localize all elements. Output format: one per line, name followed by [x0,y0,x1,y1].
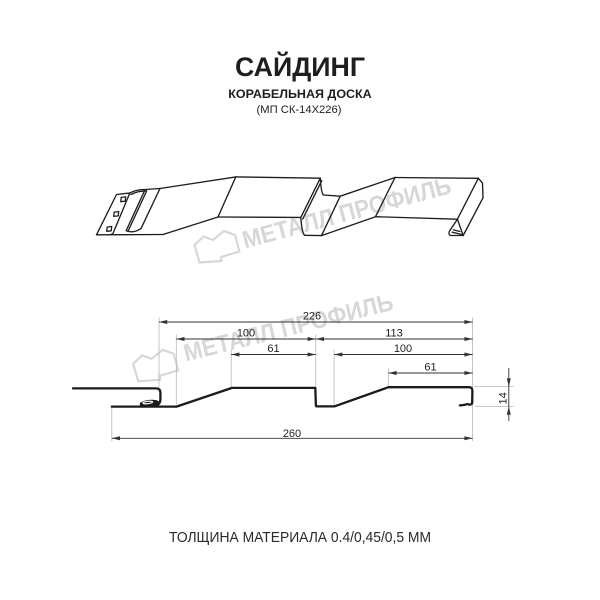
svg-text:100: 100 [237,327,255,339]
svg-text:(МП СК-14Х226): (МП СК-14Х226) [257,104,342,116]
svg-text:61: 61 [424,361,436,373]
svg-text:КОРАБЕЛЬНАЯ ДОСКА: КОРАБЕЛЬНАЯ ДОСКА [228,87,371,101]
svg-text:260: 260 [283,428,301,440]
svg-text:ТОЛЩИНА МАТЕРИАЛА 0.4/0,45/0,5: ТОЛЩИНА МАТЕРИАЛА 0.4/0,45/0,5 ММ [169,530,431,546]
svg-text:14: 14 [498,392,510,404]
svg-text:226: 226 [303,310,321,322]
svg-text:113: 113 [385,327,403,339]
svg-text:САЙДИНГ: САЙДИНГ [235,52,365,82]
svg-text:61: 61 [267,343,279,355]
svg-text:100: 100 [394,343,412,355]
